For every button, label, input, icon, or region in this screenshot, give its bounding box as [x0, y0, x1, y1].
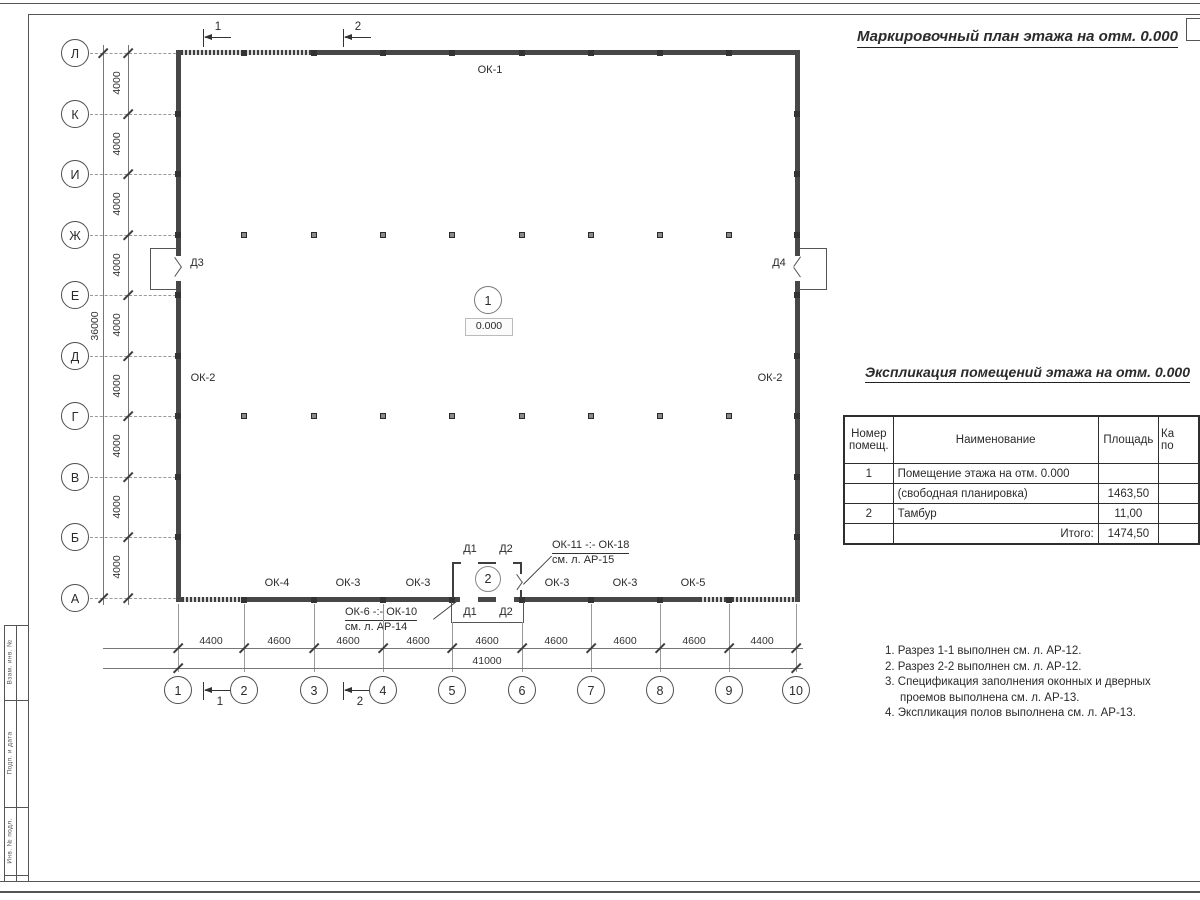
level-mark: 0.000 [465, 318, 513, 336]
row-dim: 4000 [111, 555, 123, 578]
window-label-ok2-right: ОК-2 [758, 372, 783, 384]
tambour-wall-top-seg [452, 562, 461, 564]
window-label-bottom: ОК-5 [681, 577, 706, 589]
row-axis-bubble-G: Г [61, 402, 89, 430]
stamp-cell-3-label: Инв. № подл. [7, 818, 14, 863]
tambour-outer-box [451, 602, 524, 623]
frame-top [28, 14, 1200, 15]
frame-left [28, 14, 29, 881]
extension-line-col [383, 604, 384, 672]
section-1-bottom-arrow [204, 687, 212, 693]
note-item: 3. Спецификация заполнения оконных и две… [885, 675, 1180, 706]
wall-column [726, 50, 732, 56]
leader-bottom-line2: см. л. АР-14 [345, 621, 407, 633]
dim-line-left-outer [103, 45, 104, 605]
extension-line-col [314, 604, 315, 672]
tambour-wall-top-seg [478, 562, 496, 564]
col-dim: 4600 [336, 635, 359, 647]
row-dim: 4000 [111, 192, 123, 215]
cell-category [1159, 524, 1200, 545]
wall-column [794, 413, 800, 419]
window-label-bottom: ОК-3 [613, 577, 638, 589]
interior-column [449, 232, 455, 238]
door-label-d1-bottom: Д1 [463, 606, 477, 618]
window-label-bottom: ОК-3 [336, 577, 361, 589]
dim-line-left-inner [128, 45, 129, 605]
col-dim: 4600 [682, 635, 705, 647]
interior-column [726, 232, 732, 238]
corner-box-bottom [1186, 40, 1200, 41]
leader-top-line2: см. л. АР-15 [552, 554, 614, 566]
dim-line-bottom-outer [103, 668, 803, 669]
extension-line-col [729, 604, 730, 672]
cell-name: Помещение этажа на отм. 0.000 [893, 464, 1098, 484]
note-item: 1. Разрез 1-1 выполнен см. л. АР-12. [885, 644, 1180, 660]
row-axis-bubble-V: В [61, 463, 89, 491]
row-axis-bubble-D: Д [61, 342, 89, 370]
table-row: 2 Тамбур 11,00 [844, 504, 1199, 524]
section-2-bottom-arrow [344, 687, 352, 693]
wall-column [175, 232, 181, 238]
wall-column [175, 353, 181, 359]
interior-column [657, 232, 663, 238]
wall-column [519, 50, 525, 56]
col-dim: 4600 [406, 635, 429, 647]
door-label-d2-top: Д2 [499, 543, 513, 555]
stamp-div-4 [4, 875, 28, 876]
col-dim: 4400 [750, 635, 773, 647]
extension-line-col [244, 604, 245, 672]
cell-num: 1 [844, 464, 893, 484]
door-d4-recess [800, 248, 827, 290]
row-axis-bubble-E: Е [61, 281, 89, 309]
row-dim: 4000 [111, 71, 123, 94]
col-header-category: Ка по [1159, 416, 1200, 464]
wall-column [794, 474, 800, 480]
cell-area: 1463,50 [1098, 484, 1158, 504]
cell-num: 2 [844, 504, 893, 524]
table-row: (свободная планировка) 1463,50 [844, 484, 1199, 504]
explication-table: Номер помещ. Наименование Площадь Ка по … [843, 415, 1200, 545]
wall-column [794, 111, 800, 117]
extension-line-col [178, 604, 179, 672]
wall-column [794, 534, 800, 540]
stamp-div-1 [4, 625, 28, 626]
window-label-ok1: ОК-1 [478, 64, 503, 76]
wall-column [794, 171, 800, 177]
window-label-bottom: ОК-4 [265, 577, 290, 589]
col-dim: 4400 [199, 635, 222, 647]
wall-column [175, 474, 181, 480]
leader-bottom-line1: ОК-6 -:- ОК-10 [345, 606, 417, 621]
interior-column [311, 232, 317, 238]
extension-line-col [796, 604, 797, 672]
stamp-div-3 [4, 807, 28, 808]
row-axis-bubble-L: Л [61, 39, 89, 67]
interior-column [241, 232, 247, 238]
corner-box-top [1186, 18, 1200, 19]
col-dim: 4600 [613, 635, 636, 647]
col-dim: 4600 [267, 635, 290, 647]
table-row: 1 Помещение этажа на отм. 0.000 [844, 464, 1199, 484]
sheet-edge-bottom [0, 891, 1200, 893]
wall-column [588, 597, 594, 603]
interior-column [726, 413, 732, 419]
cell-total-area: 1474,50 [1098, 524, 1158, 545]
col-axis-bubble-8: 8 [646, 676, 674, 704]
row-axis-bubble-I: И [61, 160, 89, 188]
col-axis-bubble-1: 1 [164, 676, 192, 704]
col-axis-bubble-4: 4 [369, 676, 397, 704]
row-dim: 4000 [111, 253, 123, 276]
row-axis-bubble-B: Б [61, 523, 89, 551]
notes-list: 1. Разрез 1-1 выполнен см. л. АР-12. 2. … [885, 644, 1180, 722]
col-header-num: Номер помещ. [844, 416, 893, 464]
wall-column [241, 50, 247, 56]
note-item: 2. Разрез 2-2 выполнен см. л. АР-12. [885, 660, 1180, 676]
col-dim: 4600 [544, 635, 567, 647]
wall-column [175, 111, 181, 117]
wall-column [380, 50, 386, 56]
window-label-bottom: ОК-3 [545, 577, 570, 589]
col-total-dim: 41000 [472, 655, 501, 667]
col-axis-bubble-6: 6 [508, 676, 536, 704]
row-dim: 4000 [111, 313, 123, 336]
wall-column [794, 353, 800, 359]
wall-right [795, 50, 800, 602]
wall-column [657, 50, 663, 56]
wall-column [794, 232, 800, 238]
door-d3-recess [150, 248, 177, 290]
dim-line-bottom-inner [103, 648, 803, 649]
interior-column [380, 413, 386, 419]
row-dim: 4000 [111, 374, 123, 397]
interior-column [311, 413, 317, 419]
col-header-category-line2: по [1161, 440, 1196, 452]
stamp-strip-outer [4, 625, 5, 881]
tambour-wall-left [452, 562, 454, 598]
row-axis-bubble-K: К [61, 100, 89, 128]
row-dim: 4000 [111, 495, 123, 518]
wall-column [726, 597, 732, 603]
wall-column [175, 534, 181, 540]
drawing-sheet: Взам. инв. № Подп. и дата Инв. № подл. М… [0, 0, 1200, 900]
corner-box-left [1186, 18, 1187, 40]
wall-column [175, 171, 181, 177]
section-1-bottom-label: 1 [217, 696, 223, 708]
wall-column [311, 597, 317, 603]
cell-name: Тамбур [893, 504, 1098, 524]
cell-total-label: Итого: [893, 524, 1098, 545]
door-label-d1-top: Д1 [463, 543, 477, 555]
interior-column [449, 413, 455, 419]
window-label-ok2-left: ОК-2 [191, 372, 216, 384]
wall-column [588, 50, 594, 56]
section-2-top-arrow [344, 34, 352, 40]
room-1-marker: 1 [474, 286, 502, 314]
stamp-strip-inner [16, 625, 17, 881]
table-title: Экспликация помещений этажа на отм. 0.00… [865, 364, 1190, 383]
col-dim: 4600 [475, 635, 498, 647]
section-1-top-arrow [204, 34, 212, 40]
room-2-marker: 2 [475, 566, 501, 592]
stamp-div-2 [4, 700, 28, 701]
page-title: Маркировочный план этажа на отм. 0.000 [857, 28, 1178, 48]
interior-column [241, 413, 247, 419]
row-axis-bubble-A: А [61, 584, 89, 612]
interior-column [519, 232, 525, 238]
wall-column [449, 50, 455, 56]
row-dim: 4000 [111, 132, 123, 155]
door-label-d2-bottom: Д2 [499, 606, 513, 618]
door-label-d4: Д4 [772, 257, 786, 269]
extension-line-col [660, 604, 661, 672]
interior-column [519, 413, 525, 419]
cell-area [1098, 464, 1158, 484]
frame-bottom [0, 881, 1200, 882]
interior-column [380, 232, 386, 238]
section-1-top-label: 1 [215, 21, 221, 33]
extension-line-col [591, 604, 592, 672]
col-axis-bubble-2: 2 [230, 676, 258, 704]
section-2-top-label: 2 [355, 21, 361, 33]
cell-num [844, 484, 893, 504]
section-2-bottom-label: 2 [357, 696, 363, 708]
col-axis-bubble-5: 5 [438, 676, 466, 704]
wall-column [311, 50, 317, 56]
col-header-name: Наименование [893, 416, 1098, 464]
note-item: 4. Экспликация полов выполнена см. л. АР… [885, 706, 1180, 722]
stamp-cell-2-label: Подп. и дата [7, 731, 14, 774]
row-total-dim: 36000 [89, 311, 101, 340]
wall-hatch-bottom-left [182, 597, 246, 602]
leader-top-line1: ОК-11 -:- ОК-18 [552, 539, 629, 554]
leader-note-bottom: ОК-6 -:- ОК-10 см. л. АР-14 [345, 606, 417, 634]
wall-column [794, 292, 800, 298]
window-label-bottom: ОК-3 [406, 577, 431, 589]
cell-category [1159, 484, 1200, 504]
col-axis-bubble-9: 9 [715, 676, 743, 704]
col-axis-bubble-3: 3 [300, 676, 328, 704]
row-dim: 4000 [111, 434, 123, 457]
cell-category [1159, 464, 1200, 484]
row-axis-bubble-Zh: Ж [61, 221, 89, 249]
door-label-d3: Д3 [190, 257, 204, 269]
cell-category [1159, 504, 1200, 524]
cell-name: (свободная планировка) [893, 484, 1098, 504]
cell-area: 11,00 [1098, 504, 1158, 524]
sheet-edge-top [0, 3, 1200, 4]
tambour-wall-top-seg [513, 562, 522, 564]
wall-column [380, 597, 386, 603]
interior-column [588, 413, 594, 419]
wall-column [657, 597, 663, 603]
col-axis-bubble-7: 7 [577, 676, 605, 704]
wall-column [175, 413, 181, 419]
wall-column [241, 597, 247, 603]
wall-left [176, 50, 181, 602]
col-axis-bubble-10: 10 [782, 676, 810, 704]
interior-column [588, 232, 594, 238]
interior-column [657, 413, 663, 419]
col-header-category-line1: Ка [1161, 428, 1196, 440]
table-total-row: Итого: 1474,50 [844, 524, 1199, 545]
leader-note-top: ОК-11 -:- ОК-18 см. л. АР-15 [552, 539, 629, 567]
col-header-area: Площадь [1098, 416, 1158, 464]
wall-column [175, 292, 181, 298]
wall-hatch-bottom-right [700, 597, 795, 602]
cell-num [844, 524, 893, 545]
table-header-row: Номер помещ. Наименование Площадь Ка по [844, 416, 1199, 464]
stamp-cell-1-label: Взам. инв. № [7, 639, 14, 684]
